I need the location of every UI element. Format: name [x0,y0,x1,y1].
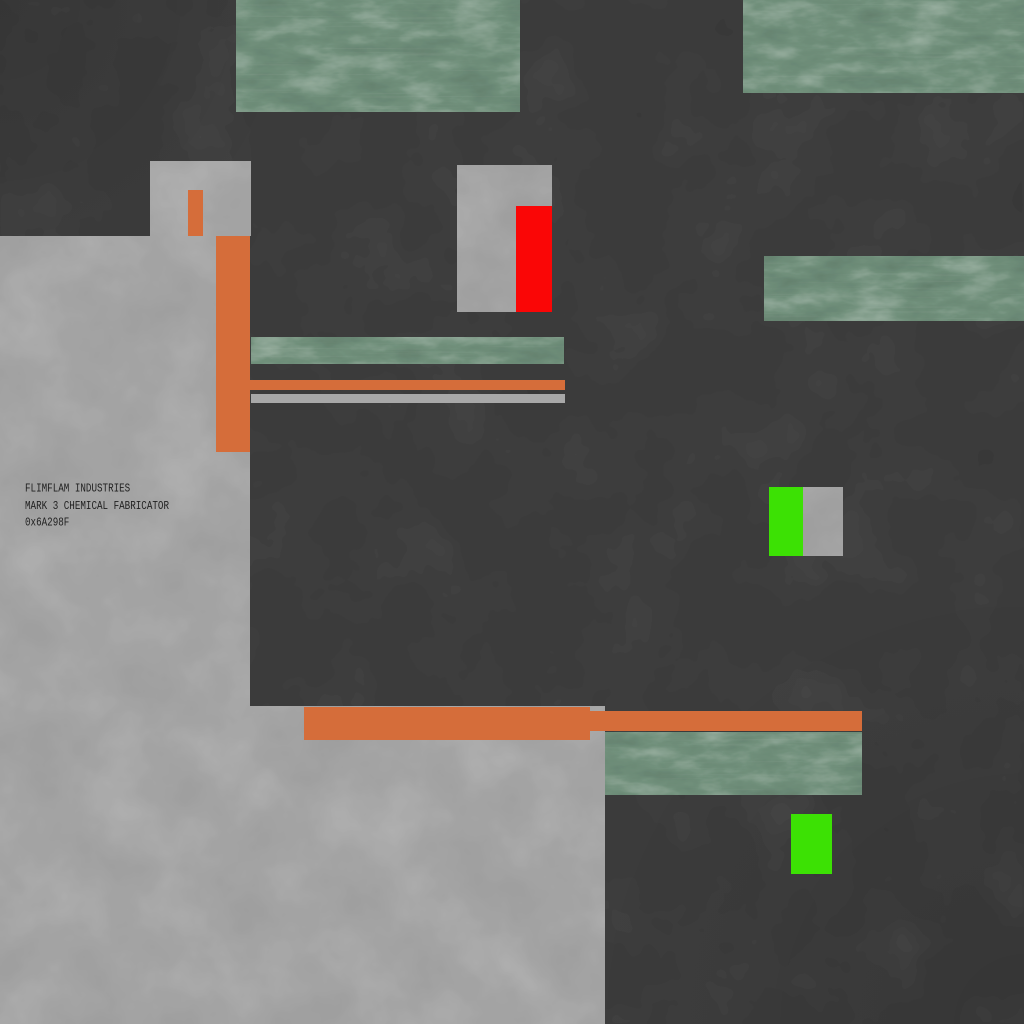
svg-text:FLIMFLAM INDUSTRIES: FLIMFLAM INDUSTRIES [25,482,130,496]
svg-text:MARK 3 CHEMICAL FABRICATOR: MARK 3 CHEMICAL FABRICATOR [25,500,169,514]
svg-text:0x6A298F: 0x6A298F [25,517,69,531]
